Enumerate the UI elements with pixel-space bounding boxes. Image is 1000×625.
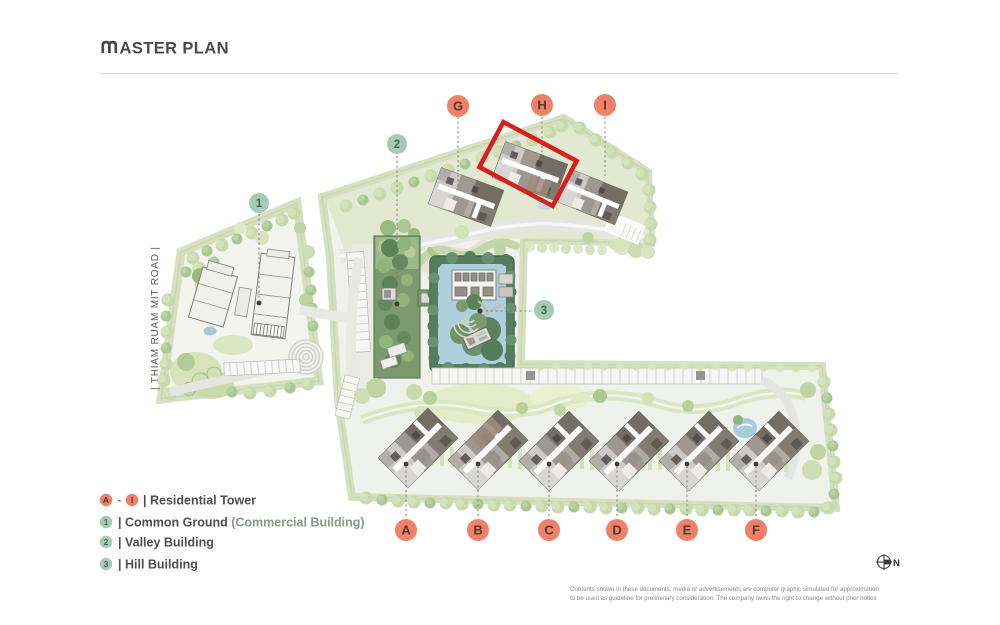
svg-text:1: 1 — [256, 198, 263, 210]
svg-text:3: 3 — [104, 559, 109, 569]
svg-text:D: D — [612, 523, 621, 538]
svg-text:A: A — [401, 523, 411, 538]
svg-text:2: 2 — [394, 139, 400, 151]
svg-text:| Valley Building: | Valley Building — [118, 536, 214, 550]
svg-text:H: H — [537, 98, 546, 113]
svg-text:ASTER PLAN: ASTER PLAN — [120, 39, 229, 57]
svg-text:| THIAM RUAM MIT ROAD |: | THIAM RUAM MIT ROAD | — [150, 246, 161, 390]
svg-text:| Residential Tower: | Residential Tower — [143, 494, 256, 508]
svg-text:2: 2 — [104, 537, 109, 547]
svg-text:| Hill Building: | Hill Building — [118, 558, 198, 572]
svg-text:I: I — [603, 98, 607, 113]
svg-text:G: G — [453, 99, 463, 114]
svg-text:I: I — [131, 495, 133, 505]
svg-text:-: - — [118, 495, 122, 507]
svg-text:N: N — [893, 558, 900, 569]
svg-text:| Common Ground (Commercial Bu: | Common Ground (Commercial Building) — [118, 516, 365, 530]
svg-text:B: B — [473, 523, 482, 538]
svg-text:to be used as guideline for pr: to be used as guideline for preliminary … — [570, 595, 877, 602]
svg-text:1: 1 — [104, 517, 109, 527]
svg-text:Contents shown in these docum: Contents shown in these documents, media… — [570, 586, 879, 593]
svg-text:E: E — [683, 523, 692, 538]
svg-text:3: 3 — [541, 305, 547, 317]
svg-text:C: C — [544, 523, 554, 538]
svg-text:F: F — [752, 523, 760, 538]
svg-text:A: A — [103, 495, 109, 505]
